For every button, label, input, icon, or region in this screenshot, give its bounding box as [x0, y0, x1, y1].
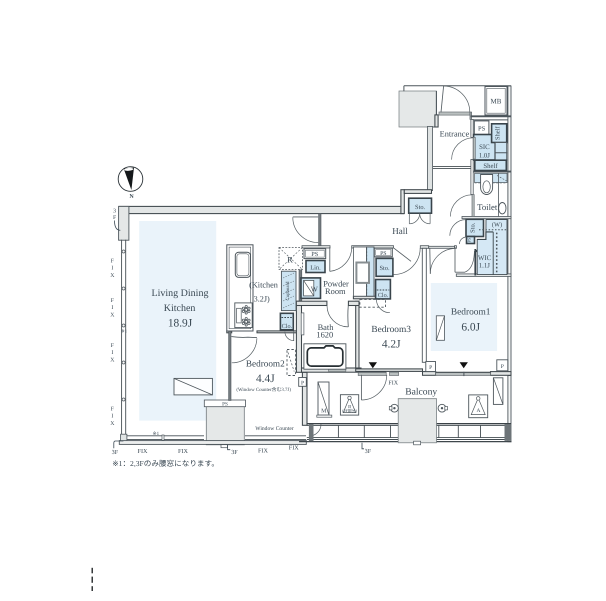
- svg-text:M: M: [321, 409, 327, 415]
- svg-text:FIX: FIX: [258, 448, 269, 455]
- svg-text:(2F部分): (2F部分): [342, 408, 358, 413]
- svg-text:1.1J: 1.1J: [479, 262, 490, 269]
- svg-text:FIX: FIX: [289, 445, 300, 452]
- svg-text:PS: PS: [467, 238, 472, 242]
- svg-text:PS: PS: [311, 251, 319, 258]
- svg-text:1620: 1620: [316, 331, 333, 340]
- svg-text:4.2J: 4.2J: [382, 339, 401, 351]
- svg-text:I: I: [111, 350, 113, 356]
- svg-text:18.9J: 18.9J: [168, 318, 193, 330]
- svg-text:MB: MB: [491, 98, 502, 106]
- svg-text:Hall: Hall: [392, 226, 408, 236]
- svg-text:Bedroom2: Bedroom2: [246, 359, 285, 369]
- svg-text:Entrance: Entrance: [440, 130, 470, 139]
- svg-text:(W): (W): [492, 221, 502, 228]
- svg-text:FIX: FIX: [138, 448, 149, 455]
- svg-text:Sto.: Sto.: [415, 204, 426, 211]
- svg-text:Sto.: Sto.: [470, 222, 477, 233]
- svg-text:※1：2,3Fのみ腰窓になります。: ※1：2,3Fのみ腰窓になります。: [112, 459, 219, 468]
- svg-text:3: 3: [113, 208, 116, 214]
- svg-text:W: W: [311, 284, 319, 293]
- svg-text:WIC: WIC: [478, 255, 492, 262]
- svg-text:4.4J: 4.4J: [256, 373, 275, 385]
- svg-text:Bedroom1: Bedroom1: [451, 307, 491, 317]
- svg-text:Sto.: Sto.: [379, 265, 390, 272]
- svg-text:3F: 3F: [231, 449, 238, 456]
- svg-text:Clo.: Clo.: [282, 323, 293, 330]
- svg-text:PS: PS: [478, 126, 486, 133]
- svg-text:Shelf: Shelf: [495, 126, 502, 140]
- svg-text:A: A: [476, 408, 480, 414]
- svg-text:Clo.: Clo.: [378, 292, 389, 299]
- svg-text:Shelf: Shelf: [483, 163, 498, 170]
- svg-text:(Window Counter含む3.7J): (Window Counter含む3.7J): [236, 386, 291, 393]
- svg-text:3F: 3F: [365, 448, 372, 455]
- svg-text:Bedroom3: Bedroom3: [371, 325, 411, 335]
- svg-text:1.0J: 1.0J: [479, 153, 490, 160]
- svg-text:SIC: SIC: [479, 144, 490, 151]
- svg-text:I: I: [111, 266, 113, 272]
- svg-text:※1: ※1: [152, 431, 159, 437]
- svg-text:P: P: [429, 365, 432, 371]
- svg-text:Cupboard: Cupboard: [285, 281, 291, 301]
- svg-text:P: P: [501, 364, 504, 370]
- svg-text:※1: ※1: [121, 329, 128, 334]
- svg-text:Window Counter: Window Counter: [255, 426, 294, 432]
- svg-text:R: R: [287, 255, 293, 265]
- svg-text:3F: 3F: [112, 449, 119, 456]
- svg-text:PS: PS: [222, 401, 228, 407]
- svg-text:(Kitchen: (Kitchen: [249, 280, 278, 289]
- svg-text:I: I: [111, 305, 113, 311]
- svg-text:N: N: [129, 194, 134, 200]
- svg-text:Room: Room: [325, 287, 346, 296]
- svg-text:Lin.: Lin.: [310, 264, 321, 271]
- svg-text:P: P: [301, 380, 304, 386]
- svg-text:Living Dining: Living Dining: [152, 288, 209, 299]
- svg-text:I: I: [111, 414, 113, 420]
- svg-text:FIX: FIX: [178, 448, 189, 455]
- svg-text:FIX: FIX: [388, 380, 398, 386]
- svg-text:Toilet: Toilet: [477, 202, 498, 212]
- svg-text:6.0J: 6.0J: [461, 322, 480, 334]
- svg-text:Balcony: Balcony: [405, 387, 437, 398]
- svg-text:Kitchen: Kitchen: [164, 303, 196, 314]
- svg-text:3.2J): 3.2J): [254, 295, 270, 304]
- svg-text:PS: PS: [380, 251, 386, 257]
